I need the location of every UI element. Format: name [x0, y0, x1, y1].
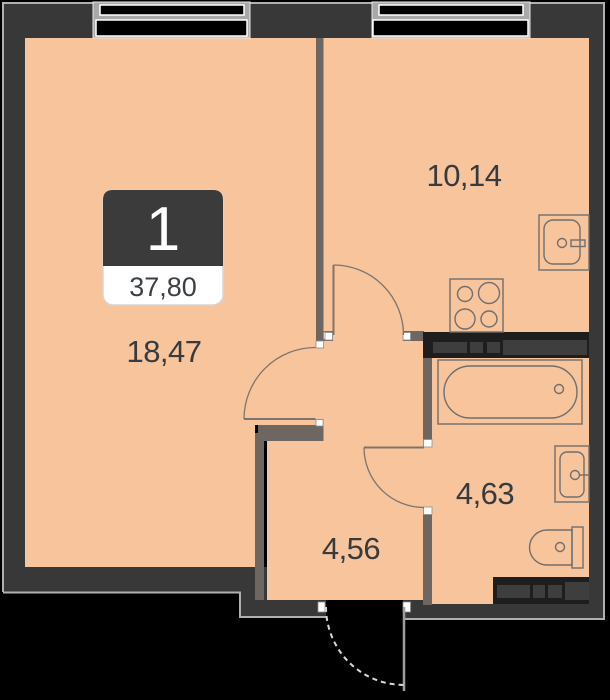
hallway-floor-west — [267, 441, 324, 600]
floor-plan: 1 37,80 18,47 10,14 4,63 4,56 — [0, 0, 610, 700]
hallway-area-label: 4,56 — [322, 531, 380, 566]
kitchen-area-label: 10,14 — [426, 158, 501, 193]
floors — [25, 38, 589, 604]
bathroom-area-label: 4,63 — [456, 476, 514, 511]
window-icon — [372, 2, 530, 38]
ventilation-shaft-kitchen — [423, 332, 589, 358]
rooms-count: 1 — [146, 195, 180, 264]
window-icon — [93, 2, 250, 38]
living-room-area-label: 18,47 — [126, 334, 201, 369]
total-area: 37,80 — [129, 272, 197, 302]
ventilation-shaft-bathroom — [493, 577, 589, 604]
apartment-badge: 1 37,80 — [103, 190, 223, 305]
